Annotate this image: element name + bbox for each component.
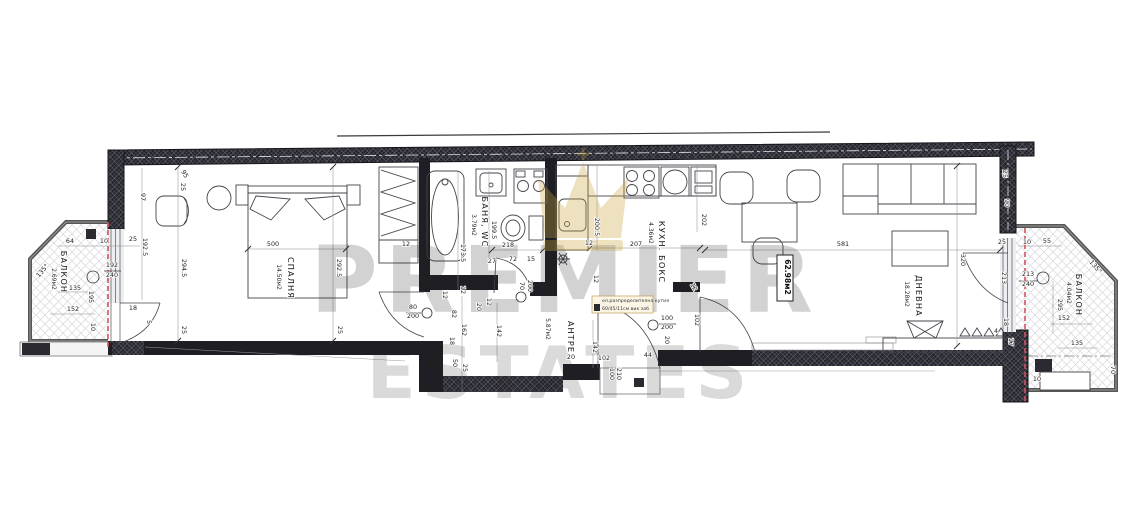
dimension-label: 295 bbox=[1056, 299, 1064, 311]
dimension-label: 100 bbox=[608, 368, 616, 380]
dimension-label: 142 bbox=[591, 341, 599, 353]
slab-block bbox=[22, 343, 50, 355]
dimension-label: 18 bbox=[1002, 318, 1010, 326]
round-basin bbox=[663, 170, 687, 194]
dimension-label: 44 bbox=[644, 351, 652, 359]
bathroom-sink bbox=[476, 169, 506, 196]
watermark: PREMIER ESTATES bbox=[310, 148, 820, 415]
dimension-label: 64 bbox=[66, 237, 74, 245]
room-label-bedroom: СПАЛНЯ bbox=[286, 257, 296, 299]
room-label-balcony-left: БАЛКОН bbox=[59, 251, 69, 293]
dimension-label: 12 bbox=[485, 298, 493, 306]
dimension-label: 100 bbox=[661, 314, 673, 322]
dimension-label: 200 bbox=[407, 312, 419, 320]
dimension-label: 25 bbox=[998, 238, 1006, 246]
dimension-label: 25 bbox=[180, 326, 188, 334]
dimension-label: 4 bbox=[994, 327, 998, 335]
note-line2: 60/45/11см вик заб bbox=[602, 306, 649, 312]
room-area-bedroom: 14.50м2 bbox=[275, 264, 282, 290]
dimension-label: 5 bbox=[145, 320, 153, 324]
dimension-label: 213 bbox=[1022, 270, 1034, 278]
room-label-bathroom: БАНЯ, WC bbox=[480, 197, 490, 248]
dimension-label: 17 bbox=[1007, 338, 1015, 346]
dimension-label: 135 bbox=[69, 284, 81, 292]
dimension-label: 20 bbox=[475, 303, 483, 311]
room-area-kitchen: 4.36м2 bbox=[647, 222, 654, 244]
dimension-label: 320 bbox=[959, 254, 967, 266]
dimension-label: 70 bbox=[518, 282, 526, 290]
room-label-kitchen: КУХН. БОКС bbox=[657, 221, 667, 283]
sofa bbox=[843, 164, 976, 214]
dimension-label: 292.5 bbox=[335, 259, 343, 277]
dimension-label: 142 bbox=[495, 325, 503, 337]
dimension-label: 199.5 bbox=[490, 221, 498, 239]
dimension-label: 240 bbox=[106, 271, 118, 279]
nightstand-left bbox=[236, 185, 248, 205]
dimension-label: 25 bbox=[336, 326, 344, 334]
dimension-label: 192 bbox=[106, 261, 118, 269]
dimension-label: 25 bbox=[1001, 170, 1009, 178]
dimension-label: 10 bbox=[100, 237, 108, 245]
dimension-label: 218 bbox=[502, 241, 514, 249]
dimension-label: 10 bbox=[1023, 238, 1031, 246]
watermark-line2: ESTATES bbox=[367, 331, 754, 415]
room-area-balcony-left: 2.69м2 bbox=[50, 268, 57, 290]
dimension-label: 50 bbox=[451, 359, 459, 367]
room-area-bathroom: 3.79м2 bbox=[470, 214, 477, 236]
dimension-label: 10 bbox=[89, 323, 97, 331]
dimension-label: 72 bbox=[509, 255, 517, 263]
radiator-symbols bbox=[960, 328, 1006, 336]
dimension-label: 173.5 bbox=[459, 244, 467, 262]
room-label-hall: АНТРЕ bbox=[566, 321, 576, 353]
dimension-label: 162 bbox=[460, 324, 468, 336]
dimension-label: 12 bbox=[592, 275, 600, 283]
dimension-label: 207 bbox=[630, 240, 642, 248]
dimension-label: 200.5 bbox=[593, 218, 601, 236]
dimension-label: 210 bbox=[615, 368, 623, 380]
dimension-label: 80 bbox=[409, 303, 417, 311]
room-area-balcony-right: 4.04м2 bbox=[1065, 282, 1072, 304]
dining-chair-1 bbox=[720, 172, 753, 204]
dimension-label: 55 bbox=[1043, 237, 1051, 245]
dimension-label: 152 bbox=[67, 305, 79, 313]
floor-plan-screenshot: PREMIER ESTATES 62.98м2 ел.разпределител… bbox=[0, 0, 1134, 520]
dimension-label: 82 bbox=[450, 310, 458, 318]
dimension-label: 581 bbox=[837, 240, 849, 248]
room-label-balcony-right: БАЛКОН bbox=[1074, 274, 1084, 316]
dimension-label: 10 bbox=[1033, 375, 1041, 383]
ac-unit bbox=[1035, 359, 1052, 372]
dimension-label: 25 bbox=[461, 364, 469, 372]
dimension-label: 12 bbox=[585, 239, 593, 247]
dimension-label: 25 bbox=[179, 183, 187, 191]
dimension-label: 195 bbox=[87, 291, 95, 303]
dimension-label: 240 bbox=[1022, 280, 1034, 288]
dimension-label: 202 bbox=[700, 214, 708, 226]
balcony-column bbox=[86, 229, 96, 239]
dimension-label: 70 bbox=[1109, 366, 1117, 374]
dimension-label: 25 bbox=[129, 235, 137, 243]
dimension-label: 200 bbox=[661, 323, 673, 331]
room-area-living: 18.28м2 bbox=[903, 281, 910, 307]
dimension-label: 152 bbox=[1058, 314, 1070, 322]
balcony-table bbox=[1040, 372, 1090, 390]
tv-unit bbox=[883, 321, 1004, 352]
total-area-box: 62.98м2 bbox=[777, 255, 793, 301]
dimension-label: 18 bbox=[129, 304, 137, 312]
dining-chair-2 bbox=[787, 170, 820, 202]
dimension-label: 12 bbox=[402, 240, 410, 248]
dimension-label: 20 bbox=[663, 336, 671, 344]
apartment-floor-plan: PREMIER ESTATES 62.98м2 ел.разпределител… bbox=[0, 0, 1134, 520]
dimension-label: 15 bbox=[527, 255, 535, 263]
dimension-label: 90 bbox=[1003, 199, 1011, 207]
nightstand-right bbox=[347, 185, 360, 205]
dimension-label: 200 bbox=[526, 280, 534, 292]
dimension-label: 27 bbox=[488, 257, 496, 265]
room-label-living: ДНЕВНА bbox=[914, 275, 924, 317]
dimension-label: 135 bbox=[1071, 339, 1083, 347]
dimension-label: 20 bbox=[567, 353, 575, 361]
dimension-label: 500 bbox=[267, 240, 279, 248]
dimension-label: 95 bbox=[179, 168, 190, 179]
dimension-label: 12 bbox=[459, 286, 467, 294]
dimension-label: 102 bbox=[693, 314, 701, 326]
bedroom-round-table bbox=[207, 186, 231, 210]
dimension-label: 213 bbox=[1000, 272, 1008, 284]
dimension-label: 102 bbox=[598, 354, 610, 362]
total-area-label: 62.98м2 bbox=[783, 259, 792, 295]
dimension-label: 18 bbox=[448, 337, 456, 345]
coffee-table bbox=[892, 231, 948, 266]
bedroom-chair bbox=[156, 196, 187, 226]
dimension-label: 294.5 bbox=[180, 259, 188, 277]
dimension-label: 192.5 bbox=[141, 238, 149, 256]
note-line1: ел.разпределителна кутия bbox=[602, 299, 669, 304]
dimension-label: 12 bbox=[441, 291, 449, 299]
dimension-label: 97 bbox=[139, 193, 147, 201]
bedroom-balcony-door bbox=[120, 303, 160, 343]
room-area-hall: 5.87м2 bbox=[544, 318, 551, 340]
